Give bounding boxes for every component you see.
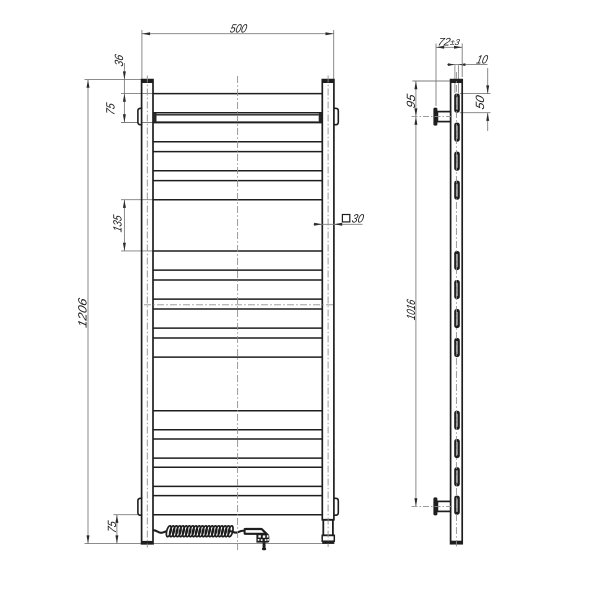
svg-text:72±3: 72±3: [437, 37, 462, 49]
svg-text:135: 135: [111, 213, 125, 233]
svg-text:1206: 1206: [76, 296, 90, 328]
svg-text:1016: 1016: [404, 298, 418, 321]
svg-text:500: 500: [229, 22, 249, 36]
